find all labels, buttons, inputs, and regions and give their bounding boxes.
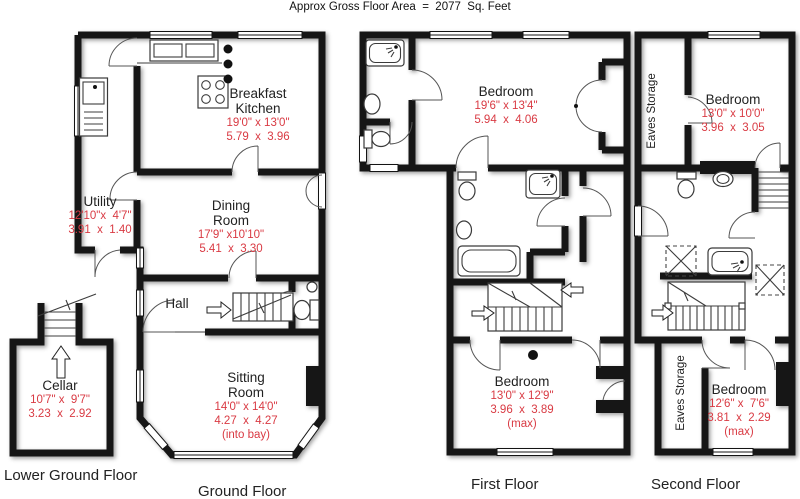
breakfast-bar-lights-icon xyxy=(224,45,233,84)
ceiling-light-icon xyxy=(528,350,538,360)
caption-first-floor: First Floor xyxy=(471,476,539,493)
wc-toilet-icon xyxy=(294,300,319,320)
room-label-sf-bedroom-rear: Bedroom 12'6" x 7'6" 3.81 x 2.29 (max) xyxy=(684,382,794,439)
caption-second-floor: Second Floor xyxy=(651,476,740,493)
room-label-ff-bedroom-rear: Bedroom 13'0" x 12'9" 3.96 x 3.89 (max) xyxy=(467,374,577,431)
room-label-sitting-room: Sitting Room 14'0" x 14'0" 4.27 x 4.27 (… xyxy=(186,370,306,442)
room-label-cellar: Cellar 10'7" x 9'7" 3.23 x 2.92 xyxy=(5,378,115,421)
second-floor-toilet-icon xyxy=(677,172,696,198)
room-label-sf-bedroom-front: Bedroom 13'0" x 10'0" 3.96 x 3.05 xyxy=(678,92,788,135)
cellar-stairs-icon xyxy=(38,294,96,378)
second-floor-sink-icon xyxy=(713,172,733,187)
first-floor-stairs-icon xyxy=(472,283,583,331)
room-label-utility: Utility 12'10"x 4'7" 3.91 x 1.40 xyxy=(45,194,155,237)
ground-floor-stairs-icon xyxy=(207,293,293,321)
chimney-breast xyxy=(306,366,319,406)
bathroom-sink-icon xyxy=(457,221,472,239)
ensuite-sink-icon xyxy=(364,94,380,114)
bathroom-shower-icon xyxy=(526,170,560,198)
room-label-ff-bedroom-front: Bedroom 19'6" x 13'4" 5.94 x 4.06 xyxy=(451,84,561,127)
ensuite-shower-icon xyxy=(366,40,404,66)
caption-lower-ground-floor: Lower Ground Floor xyxy=(4,467,137,484)
page-title: Approx Gross Floor Area = 2077 Sq. Feet xyxy=(0,1,800,13)
lower-ground-floor-plan xyxy=(13,294,110,453)
caption-ground-floor: Ground Floor xyxy=(198,483,286,499)
floorplan-page: Approx Gross Floor Area = 2077 Sq. Feet … xyxy=(0,0,800,499)
wc-basin-icon xyxy=(307,282,317,292)
utility-sink-icon xyxy=(80,78,108,136)
ensuite-toilet-icon xyxy=(364,130,390,148)
second-floor-shower-icon xyxy=(708,248,752,275)
room-label-dining-room: Dining Room 17'9" x10'10" 5.41 x 3.30 xyxy=(171,198,291,256)
second-floor-stairs-icon xyxy=(652,282,745,330)
landing-stairs-icon xyxy=(758,172,789,208)
bathroom-toilet-icon xyxy=(458,172,476,200)
bathtub-icon xyxy=(458,246,520,276)
room-label-eaves-storage-front: Eaves Storage xyxy=(646,71,674,151)
room-label-hall: Hall xyxy=(152,296,202,311)
kitchen-sink-icon xyxy=(137,40,222,63)
room-label-breakfast-kitchen: Breakfast Kitchen 19'0" x 13'0" 5.79 x 3… xyxy=(198,86,318,144)
